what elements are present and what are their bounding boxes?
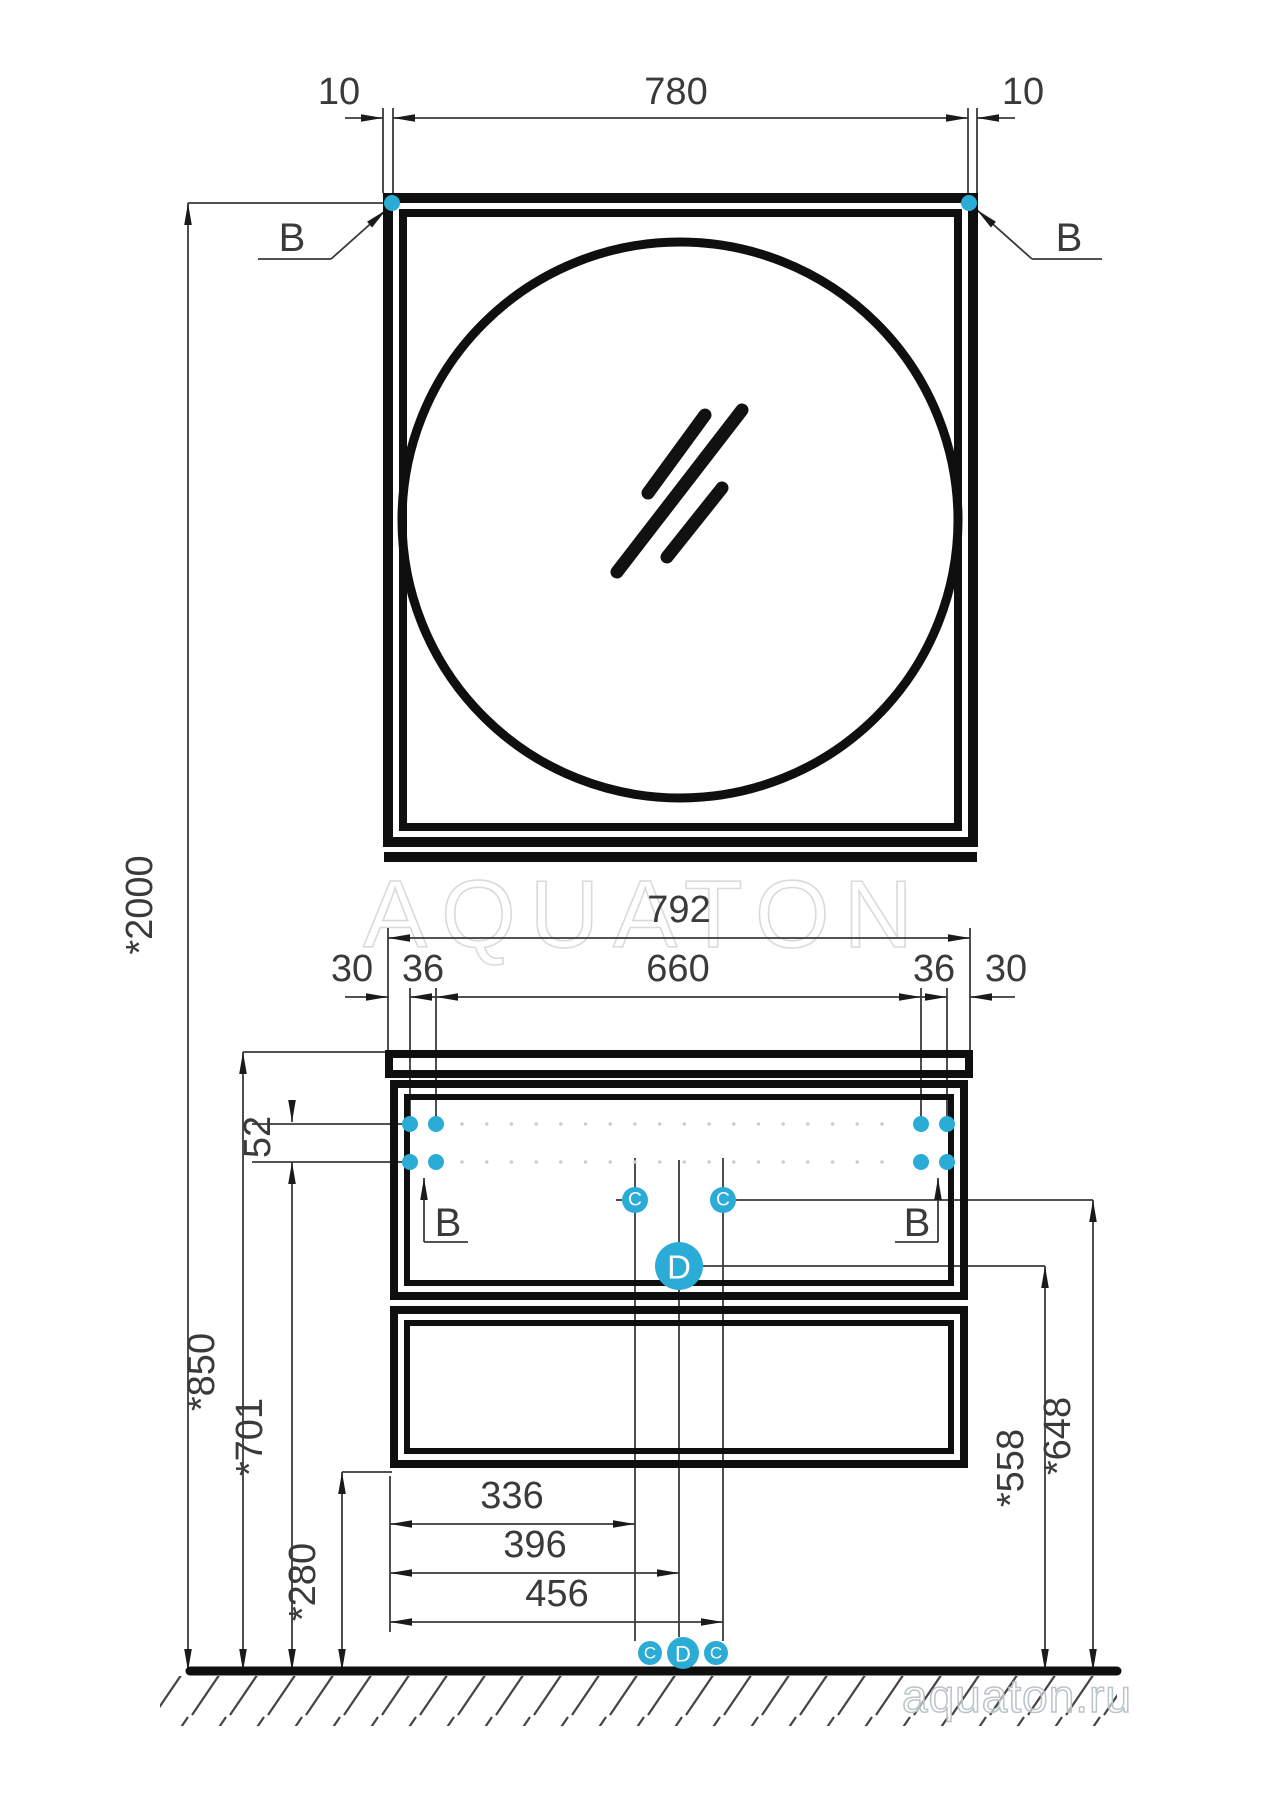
dim-cabinet-width: 792 — [647, 889, 710, 931]
technical-drawing-page: AQUATON — [0, 0, 1272, 1800]
dim-worktop-height: *850 — [181, 1333, 223, 1411]
callout-b-cabinet-right: B — [904, 1201, 931, 1245]
ground: aquaton.ru — [160, 1670, 1132, 1726]
callout-c-left: C — [628, 1190, 642, 1211]
dim-mirror-offset-left: 10 — [318, 71, 360, 113]
dim-mirror-width: 780 — [644, 71, 707, 113]
dim-d-height: *558 — [990, 1429, 1032, 1507]
dim-holes-height: *701 — [229, 1398, 271, 1476]
furniture-dimension-drawing: AQUATON — [0, 0, 1272, 1800]
callout-b-cabinet-left: B — [435, 1201, 462, 1245]
dim-drain-396: 396 — [503, 1524, 566, 1566]
callout-b-mirror-right: B — [1056, 216, 1083, 260]
callout-c-right: C — [716, 1190, 730, 1211]
dim-hole-inset-right: 36 — [913, 948, 955, 990]
watermark-corner: aquaton.ru — [902, 1670, 1132, 1722]
dim-edge-left: 30 — [331, 948, 373, 990]
dim-drain-336: 336 — [480, 1475, 543, 1517]
dim-drain-456: 456 — [525, 1573, 588, 1615]
mirror-front-view — [384, 195, 977, 857]
dim-edge-right: 30 — [985, 948, 1027, 990]
callout-c-bottom-left: C — [644, 1644, 656, 1663]
dim-hole-span: 660 — [646, 948, 709, 990]
mirror-glass-circle — [402, 242, 958, 798]
dim-hole-inset-left: 36 — [402, 948, 444, 990]
callout-b-mirror-left: B — [279, 216, 306, 260]
dim-mirror-offset-right: 10 — [1002, 71, 1044, 113]
watermark-center: AQUATON — [363, 861, 927, 968]
cabinet-worktop — [389, 1054, 969, 1074]
mirror-mount-point-right — [961, 195, 977, 211]
dim-overall-height: *2000 — [119, 855, 161, 954]
dim-hole-row-spacing: 52 — [237, 1116, 279, 1158]
callout-d: D — [667, 1249, 691, 1286]
dim-cabinet-bottom-height: *280 — [282, 1543, 324, 1621]
mirror-shine-icon — [617, 410, 742, 572]
callout-d-bottom: D — [675, 1642, 691, 1667]
dim-c-height: *648 — [1037, 1397, 1079, 1475]
mirror-mount-point-left — [384, 195, 400, 211]
callout-c-bottom-right: C — [710, 1644, 722, 1663]
mirror-inner-frame — [403, 213, 958, 827]
mirror-outer-frame — [388, 198, 973, 842]
